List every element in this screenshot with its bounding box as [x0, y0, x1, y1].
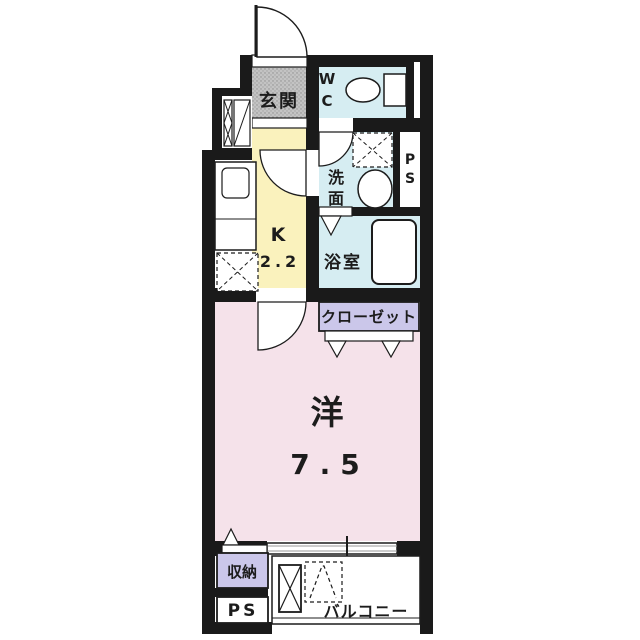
closet-label: クローゼット: [321, 308, 417, 326]
washroom-label-line1: 洗: [328, 168, 344, 187]
entrance-label: 玄関: [259, 90, 299, 112]
washroom-label-line2: 面: [328, 189, 344, 208]
wall-toilet-right-stub: [406, 62, 414, 120]
toilet-bowl: [346, 78, 380, 102]
toilet-tank: [384, 74, 406, 106]
entrance-step: [252, 118, 307, 128]
refrigerator-space: [217, 253, 258, 291]
wall-pipe-space-left: [393, 132, 400, 215]
kitchen-area-label: 2.2: [260, 252, 300, 271]
sink-icon: [358, 170, 392, 208]
pipe-space-top-label-line2: S: [405, 171, 415, 187]
pipe-space-top-label-line1: P: [405, 152, 415, 168]
wall-right: [420, 55, 433, 634]
balcony-pillar: [279, 565, 301, 612]
wall-bathroom-top: [352, 207, 433, 216]
pipe-space-bottom-label: PS: [228, 601, 259, 621]
wall-storage-divider: [215, 588, 268, 597]
storage-label: 収納: [227, 563, 257, 581]
evacuation-hatch: [305, 562, 342, 602]
wall-window-right: [397, 541, 421, 556]
washing-machine-space: [353, 133, 392, 167]
shaft-hatch: [224, 100, 232, 146]
wall-closet-top: [306, 288, 433, 302]
main-room-area-label: 7.5: [290, 448, 370, 481]
floor-plan: 玄関 W C 洗 面 P S 浴室 K 2.2 クローゼット 洋 7.5 収納 …: [0, 0, 640, 640]
kitchen-sink: [222, 168, 249, 198]
kitchen-counter: [215, 162, 256, 250]
meter-box: [222, 96, 252, 148]
wall-left: [202, 150, 215, 634]
toilet-label-line2: C: [321, 92, 332, 110]
floor-plan-drawing: 玄関 W C 洗 面 P S 浴室 K 2.2 クローゼット 洋 7.5 収納 …: [0, 0, 640, 640]
washroom-door-opening: [319, 118, 353, 132]
kitchen-door-opening: [306, 150, 319, 196]
toilet-service-gap: [414, 62, 420, 118]
toilet-label-line1: W: [319, 70, 336, 88]
main-room-door-opening: [256, 288, 306, 302]
main-room-label: 洋: [311, 393, 344, 432]
bathtub-icon: [372, 220, 416, 284]
pipe-space-top-floor: [400, 132, 420, 207]
kitchen-label: K: [271, 224, 287, 246]
bathroom-label: 浴室: [324, 252, 362, 273]
balcony-label: バルコニー: [324, 602, 409, 621]
